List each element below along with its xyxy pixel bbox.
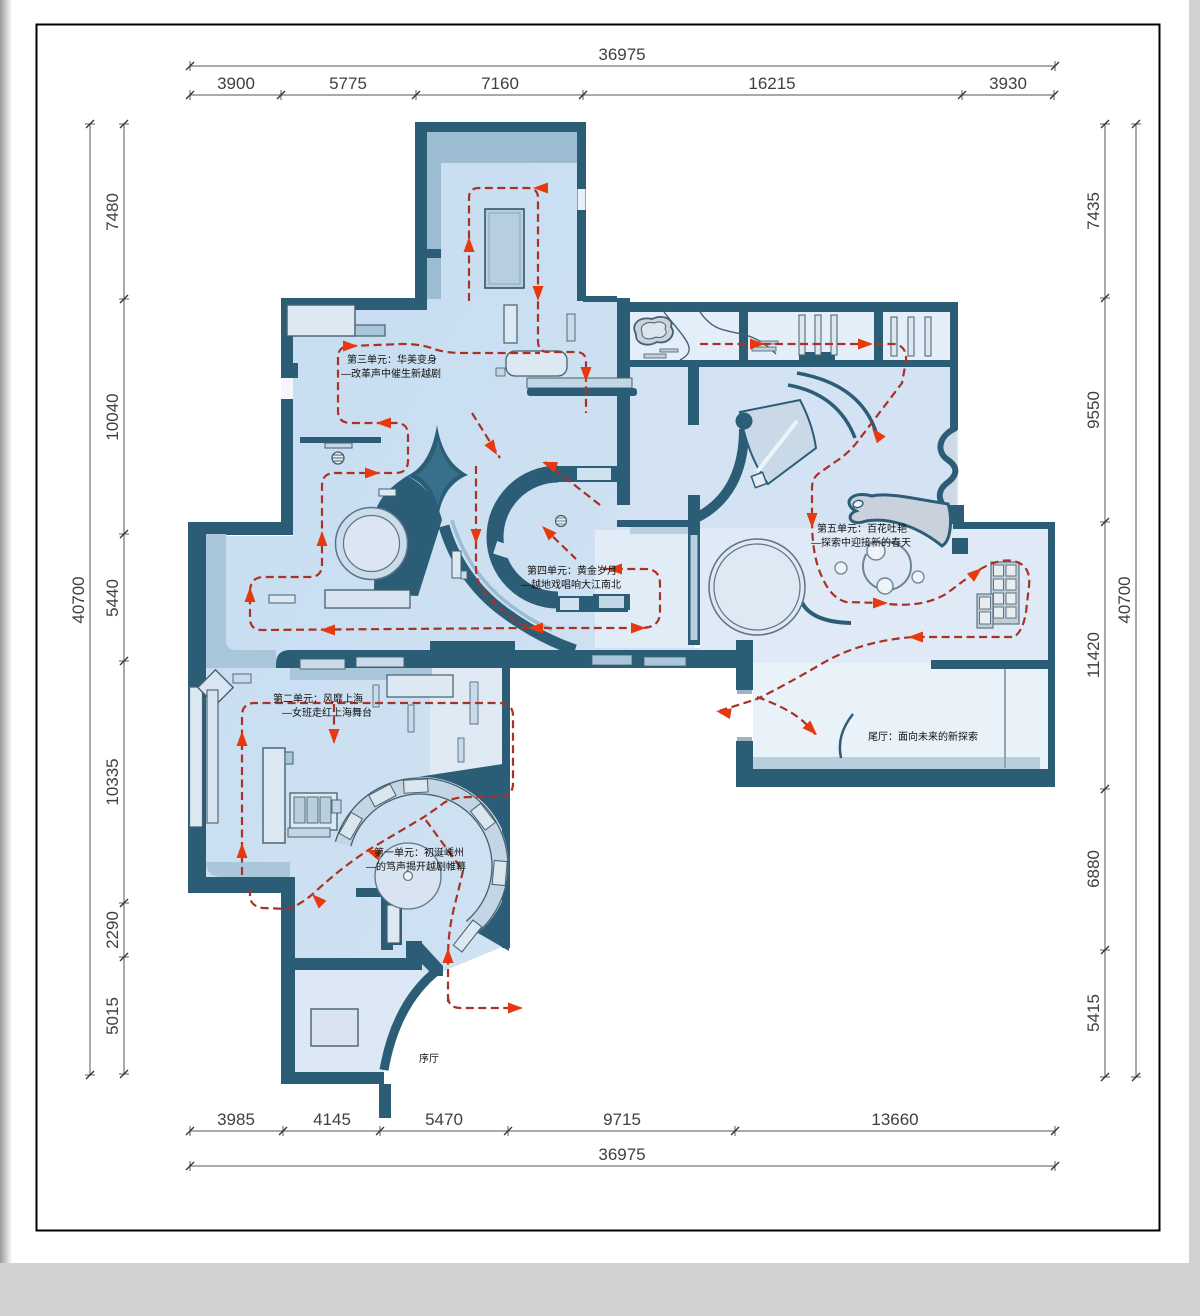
svg-text:5015: 5015 (103, 997, 122, 1035)
svg-text:13660: 13660 (871, 1110, 918, 1129)
svg-text:尾厅：面向未来的新探索: 尾厅：面向未来的新探索 (868, 730, 978, 743)
svg-text:第一单元：初诞嵊州: 第一单元：初诞嵊州 (374, 846, 464, 859)
svg-text:第五单元：百花吐艳: 第五单元：百花吐艳 (817, 522, 907, 535)
svg-text:第三单元：华美变身: 第三单元：华美变身 (347, 353, 437, 366)
svg-text:第四单元：黄金岁月: 第四单元：黄金岁月 (527, 564, 617, 577)
svg-text:9715: 9715 (603, 1110, 641, 1129)
svg-text:3930: 3930 (989, 74, 1027, 93)
svg-text:11420: 11420 (1084, 632, 1103, 678)
svg-text:—改革声中催生新越剧: —改革声中催生新越剧 (341, 367, 441, 380)
svg-text:5440: 5440 (103, 579, 122, 617)
svg-text:40700: 40700 (1115, 576, 1134, 623)
svg-text:2290: 2290 (103, 911, 122, 949)
svg-text:6880: 6880 (1084, 850, 1103, 888)
svg-text:36975: 36975 (598, 1145, 645, 1164)
svg-text:10040: 10040 (103, 393, 122, 440)
svg-text:5415: 5415 (1084, 994, 1103, 1032)
svg-text:16215: 16215 (748, 74, 795, 93)
svg-text:10335: 10335 (103, 758, 122, 805)
svg-text:7160: 7160 (481, 74, 519, 93)
svg-text:5470: 5470 (425, 1110, 463, 1129)
svg-text:—女班走红上海舞台: —女班走红上海舞台 (282, 706, 372, 719)
svg-text:5775: 5775 (329, 74, 367, 93)
svg-text:40700: 40700 (69, 576, 88, 623)
svg-text:9550: 9550 (1084, 391, 1103, 429)
svg-text:3985: 3985 (217, 1110, 255, 1129)
svg-text:—越地戏唱响大江南北: —越地戏唱响大江南北 (521, 578, 621, 591)
svg-text:第二单元：风靡上海: 第二单元：风靡上海 (273, 692, 363, 705)
svg-text:3900: 3900 (217, 74, 255, 93)
svg-text:7480: 7480 (103, 193, 122, 231)
svg-text:4145: 4145 (313, 1110, 351, 1129)
svg-text:7435: 7435 (1084, 192, 1103, 230)
svg-text:—探索中迎接新的春天: —探索中迎接新的春天 (811, 536, 911, 549)
svg-text:序厅: 序厅 (419, 1052, 439, 1065)
svg-text:36975: 36975 (598, 45, 645, 64)
svg-text:—的笃声揭开越剧帷幕: —的笃声揭开越剧帷幕 (366, 860, 466, 873)
